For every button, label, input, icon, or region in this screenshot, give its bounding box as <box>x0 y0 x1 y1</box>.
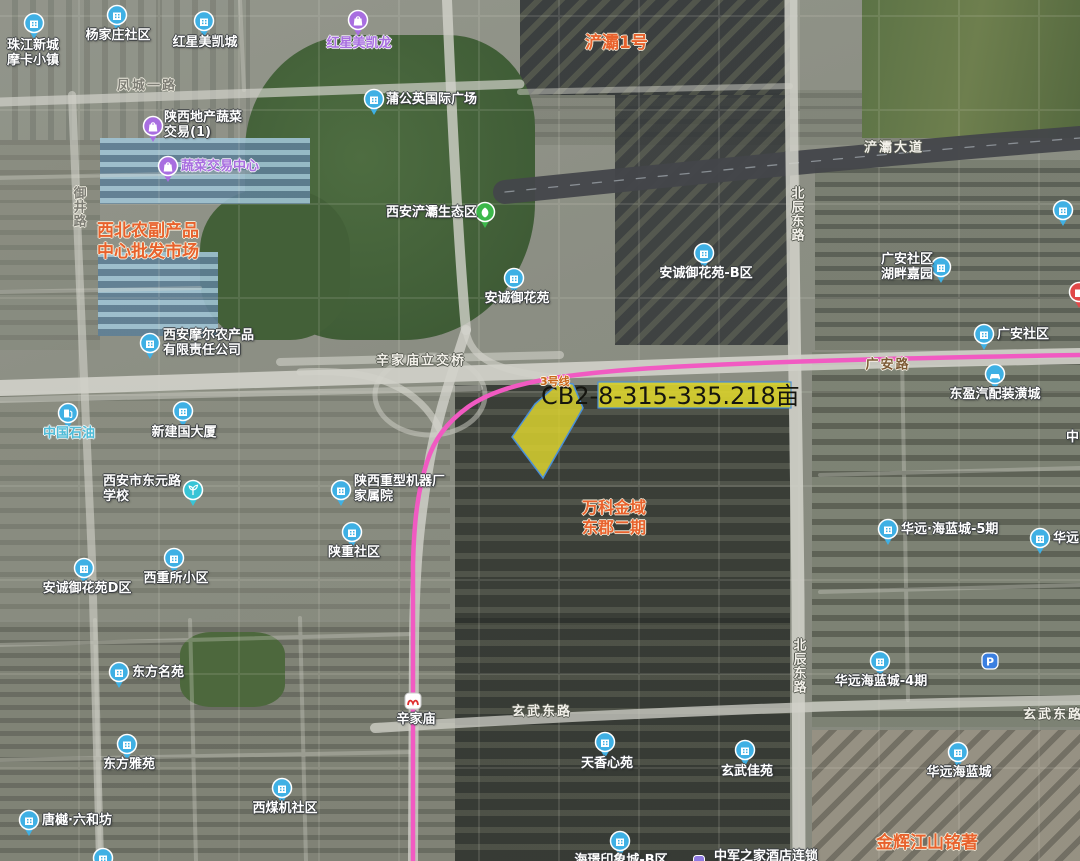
poi-label[interactable]: 安诚御花苑-B区 <box>659 266 752 281</box>
poi-label[interactable]: 东盈汽配装潢城 <box>949 387 1040 402</box>
poi-label[interactable]: 红星美凯城 <box>172 35 237 50</box>
poi-pin-icon[interactable] <box>877 518 899 550</box>
poi-label[interactable]: 陕西重型机器厂 家属院 <box>354 474 445 505</box>
poi-label[interactable]: 安诚御花苑 <box>484 291 549 306</box>
hotel-icon[interactable] <box>693 852 705 861</box>
metro-station-label[interactable]: 辛家庙 <box>396 712 435 727</box>
poi-label[interactable]: 广安社区 湖畔嘉园 <box>881 252 933 283</box>
poi-pin-icon[interactable] <box>1052 199 1074 231</box>
poi-label[interactable]: 华远·海蓝城-5期 <box>901 522 998 537</box>
poi-label[interactable]: 华远 <box>1053 531 1079 546</box>
road-label: 玄武东路 <box>512 701 572 720</box>
road-label: 北辰东路 <box>789 638 808 694</box>
poi-label[interactable]: 海璟印象城-B区 <box>574 853 667 861</box>
poi-pin-icon[interactable] <box>474 201 496 233</box>
road-label: 辛家庙立交桥 <box>376 350 466 369</box>
poi-label[interactable]: 新建国大厦 <box>151 425 216 440</box>
poi-label[interactable]: 华远海蓝城-4期 <box>835 674 927 689</box>
poi-label[interactable]: 中国石油 <box>43 426 95 441</box>
poi-pin-icon[interactable] <box>92 847 114 861</box>
road-label: 凤城一路 <box>117 75 177 94</box>
poi-label[interactable]: 西安浐灞生态区 <box>386 205 477 220</box>
parking-icon[interactable]: P <box>981 652 999 674</box>
poi-pin-icon[interactable] <box>973 323 995 355</box>
road-label: 浐灞大道 <box>864 137 924 156</box>
poi-label[interactable]: 中 <box>1066 430 1079 445</box>
poi-label[interactable]: 西煤机社区 <box>252 801 317 816</box>
poi-label[interactable]: 玄武佳苑 <box>721 764 773 779</box>
poi-label[interactable]: 东方名苑 <box>132 665 184 680</box>
poi-pin-icon[interactable] <box>363 88 385 120</box>
poi-label[interactable]: 蔬菜交易中心 <box>181 159 259 174</box>
poi-pin-icon[interactable] <box>142 115 164 147</box>
svg-text:P: P <box>986 656 994 669</box>
satellite-map-canvas[interactable]: CB2-8-315-335.218亩 3号线 辛家庙 珠江新城 摩卡小镇杨家庄社… <box>0 0 1080 861</box>
road-label: 北辰东路 <box>787 186 806 242</box>
parcel-code-label: CB2-8-315-335.218亩 <box>541 382 800 410</box>
poi-label[interactable]: 华远海蓝城 <box>926 765 991 780</box>
poi-pin-icon[interactable] <box>1029 527 1051 559</box>
road-label: 御井路 <box>69 186 88 228</box>
poi-label[interactable]: 唐樾·六和坊 <box>42 813 112 828</box>
poi-pin-icon[interactable] <box>330 479 352 511</box>
metro-line-3-tag: 3号线 <box>540 373 570 389</box>
poi-pin-icon[interactable] <box>157 155 179 187</box>
poi-label[interactable]: 东方雅苑 <box>103 757 155 772</box>
poi-label[interactable]: 安诚御花苑D区 <box>43 581 132 596</box>
poi-label[interactable]: 天香心苑 <box>581 756 633 771</box>
poi-pin-icon[interactable] <box>18 809 40 841</box>
area-label: 金辉江山铭著 <box>876 833 978 854</box>
metro-line-3[interactable] <box>413 355 1080 861</box>
poi-label[interactable]: 陕西地产蔬菜 交易(1) <box>164 110 242 141</box>
road-label: 玄武东路 <box>1023 704 1080 723</box>
poi-pin-icon[interactable] <box>139 332 161 364</box>
poi-label[interactable]: 珠江新城 摩卡小镇 <box>7 38 59 69</box>
poi-label[interactable]: 红星美凯龙 <box>326 36 391 51</box>
red-poi-icon[interactable] <box>1068 281 1080 313</box>
poi-pin-icon[interactable] <box>930 256 952 288</box>
road-label: 广安路 <box>865 354 910 373</box>
area-label: 西北农副产品 中心批发市场 <box>97 221 199 262</box>
poi-pin-icon[interactable] <box>108 661 130 693</box>
poi-label[interactable]: 杨家庄社区 <box>85 28 150 43</box>
poi-label[interactable]: 广安社区 <box>997 327 1049 342</box>
poi-label[interactable]: 中军之家酒店连锁 <box>714 849 818 861</box>
poi-label[interactable]: 西重所小区 <box>143 571 208 586</box>
area-label: 浐灞1号 <box>585 33 648 54</box>
poi-label[interactable]: 西安市东元路 学校 <box>103 474 181 505</box>
poi-label[interactable]: 陕重社区 <box>328 545 380 560</box>
poi-label[interactable]: 西安摩尔农产品 有限责任公司 <box>163 328 254 359</box>
metro-station-icon[interactable] <box>404 692 422 714</box>
area-label: 万科金域 东郡二期 <box>582 498 646 537</box>
poi-label[interactable]: 蒲公英国际广场 <box>386 92 477 107</box>
poi-pin-icon[interactable] <box>182 479 204 511</box>
